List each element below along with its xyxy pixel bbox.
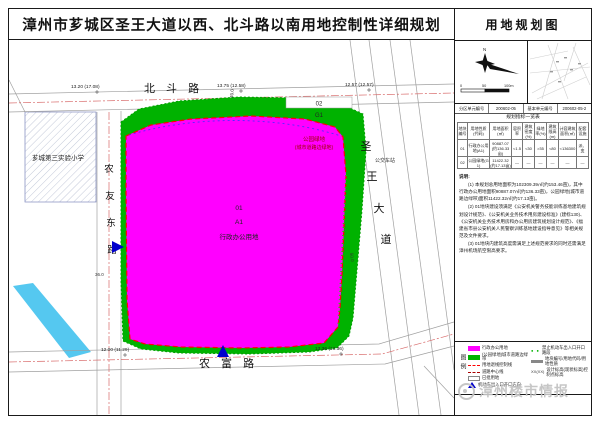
location-map [528, 41, 591, 103]
green-dots-icon: ● ● [531, 349, 540, 353]
parcel01-number: 01 [235, 205, 243, 212]
watermark-text: 漳州楼市情报 [479, 381, 569, 401]
parcel02-code: G1 [315, 113, 324, 119]
north-label: N [483, 47, 486, 52]
svg-text:0: 0 [460, 84, 462, 88]
legend-label: 行政办公用地 [482, 346, 508, 351]
svg-text:圣: 圣 [361, 140, 372, 153]
notes-title: 说明: [459, 173, 587, 180]
svg-text:东: 东 [106, 217, 116, 229]
watermark-logo-icon [458, 383, 475, 400]
green-swatch-icon [468, 355, 480, 360]
compass-and-location-row: N 0 50 100m [455, 41, 591, 104]
sidebar: 用地规划图 N 0 50 100m [454, 8, 592, 416]
note-2: (2) 01地块建设须满足《公安机关警务技能训练基地建筑规划设计规范》、《公安机… [459, 203, 587, 239]
svg-text:50: 50 [482, 84, 486, 88]
legend-item-setback-line: 用地退线控制线 [468, 363, 531, 368]
plot-code-box-icon [531, 360, 543, 363]
legend-label: 道路中心线 [482, 370, 503, 375]
legend-item-elevation: XX(XX) 设计标高(现状标高)控制点标高 [531, 368, 589, 377]
note-3: (3) 01地块内建筑高度需满足上述规范要求的同时还需满足漳州机场航空限高要求。 [459, 240, 587, 254]
drawing-title: 用地规划图 [455, 9, 591, 41]
north-arrow-icon: N 0 50 100m [455, 41, 527, 103]
svg-text:12.00 (11.29): 12.00 (11.29) [101, 347, 130, 353]
unit-value-2: 200602-05-2 [558, 104, 591, 113]
legend-label: 地块编号/用地代码/用地性质 [545, 357, 589, 366]
parcel02-number: 02 [316, 102, 323, 108]
school-label: 芗城第三实验小学 [32, 153, 85, 162]
indicators-header-row: 地块编号用地性质(代码) 用地面积(㎡)容积率 建筑密度(%)绿地率(%) 建筑… [458, 123, 589, 140]
note-1: (1) 本规划总用地面积为102309.39㎡(约153.46亩)，其中行政办公… [459, 181, 587, 202]
drawing-title-text: 用地规划图 [485, 16, 560, 33]
unit-label-2: 基本单元编号 [524, 104, 558, 113]
red-dashed-line-icon [468, 365, 480, 366]
sheet-title-text: 漳州市芗城区圣王大道以西、北斗路以南用地控制性详细规划 [22, 14, 441, 35]
dim-north: 40.0 [229, 88, 235, 98]
river [13, 283, 91, 358]
svg-text:友: 友 [105, 190, 115, 202]
legend-heading: 图例 [458, 354, 467, 372]
park-green-label-2: (城市道路边绿地) [295, 144, 334, 151]
sheet-title: 漳州市芗城区圣王大道以西、北斗路以南用地控制性详细规划 [8, 8, 455, 40]
road-name-nongyoudong: 农 友 东 路 [104, 163, 117, 256]
legend-label: 禁止机动车出入口开口路段 [542, 346, 589, 355]
legend-item-centerline: 道路中心线 [468, 370, 531, 375]
legend-item-admin-land: 行政办公用地 [468, 346, 531, 351]
land-use-map: 02 G1 公园绿地 (城市道路边绿地) 01 A1 行政办公用地 芗城第三实验… [8, 39, 455, 416]
park-green-label-1: 公园绿地 [303, 135, 326, 143]
svg-text:农: 农 [104, 163, 114, 175]
legend-item-no-access: ● ● 禁止机动车出入口开口路段 [531, 346, 589, 355]
magenta-swatch-icon [468, 346, 480, 351]
compass-cell: N 0 50 100m [455, 41, 528, 103]
parcel01-use: 行政办公用地 [220, 232, 260, 241]
legend-item-park-green: (公园绿地)城市道路边绿带 [468, 353, 531, 362]
parcel01-code: A1 [235, 219, 243, 226]
table-row: 02公园绿地(G1) 11422.32 (约17.13亩)— —— —— — [458, 157, 589, 169]
map-canvas: 02 G1 公园绿地 (城市道路边绿地) 01 A1 行政办公用地 芗城第三实验… [9, 40, 454, 415]
svg-text:100m: 100m [504, 84, 514, 88]
legend-label: 用地退线控制线 [482, 363, 512, 368]
road-name-nongfu: 农 富 路 [199, 356, 258, 370]
bus-stop-label: 公交车站 [375, 157, 395, 164]
indicators-table-title: 规划指标一览表 [455, 114, 591, 122]
svg-text:道: 道 [381, 232, 392, 246]
elevation-symbol: XX(XX) [531, 370, 544, 374]
unit-label-1: 分区单元编号 [455, 104, 489, 113]
unit-number-strip: 分区单元编号 200602-05 基本单元编号 200602-05-2 [455, 104, 591, 114]
red-dashdot-line-icon [468, 372, 480, 373]
svg-text:王: 王 [367, 171, 378, 183]
indicators-table: 地块编号用地性质(代码) 用地面积(㎡)容积率 建筑密度(%)绿地率(%) 建筑… [457, 122, 589, 169]
table-row: 01行政办公用地(A1) 90887.07 (约136.33亩)<1.5 <30… [458, 140, 589, 157]
unit-value-1: 200602-05 [489, 104, 523, 113]
svg-text:13.75 (12.58): 13.75 (12.58) [217, 83, 246, 89]
notes-section: 说明: (1) 本规划总用地面积为102309.39㎡(约153.46亩)，其中… [455, 170, 591, 255]
planning-sheet: 漳州市芗城区圣王大道以西、北斗路以南用地控制性详细规划 [0, 0, 600, 424]
legend-label: (公园绿地)城市道路边绿带 [482, 353, 531, 362]
legend-item-plot-code: 地块编号/用地代码/用地性质 [531, 357, 589, 366]
svg-text:13.20 (17.08): 13.20 (17.08) [71, 84, 100, 90]
road-name-beidou: 北 斗 路 [144, 82, 203, 95]
svg-text:12.57 (12.57): 12.57 (12.57) [345, 82, 374, 88]
scale-bar: 0 50 100m [460, 84, 514, 92]
spacer [455, 255, 591, 341]
svg-text:13.36 (13.36): 13.36 (13.36) [315, 346, 344, 352]
dim-west: 36.0 [95, 272, 104, 277]
watermark: 漳州楼市情报 [458, 381, 569, 401]
legend-label: 设计标高(现状标高)控制点标高 [546, 368, 589, 377]
svg-text:大: 大 [374, 201, 385, 215]
